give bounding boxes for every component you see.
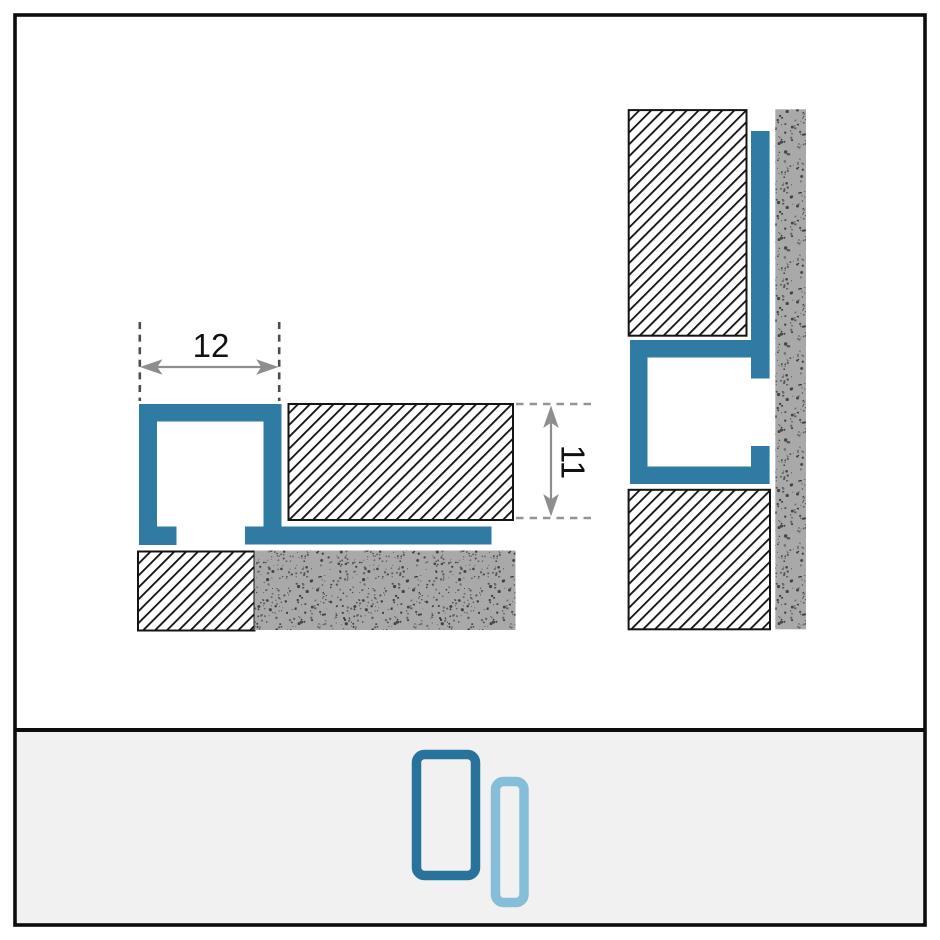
svg-text:11: 11 <box>555 445 592 479</box>
svg-text:12: 12 <box>193 327 230 364</box>
